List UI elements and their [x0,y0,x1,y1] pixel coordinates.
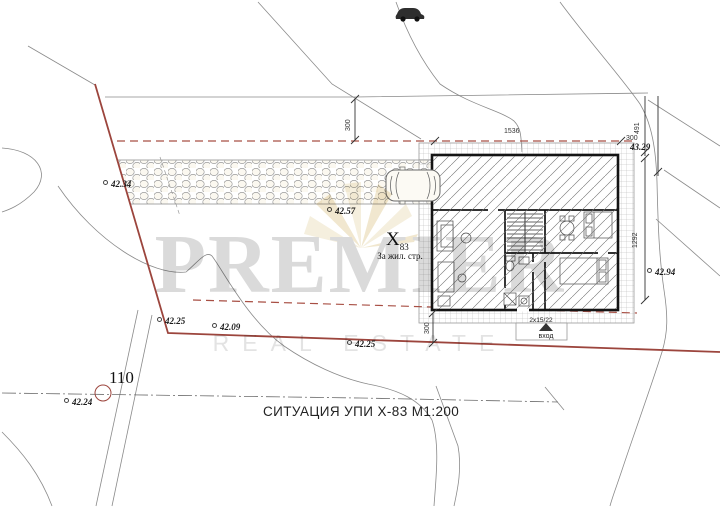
site-plan-canvas: СИТУАЦИЯ УПИ Х-83 М1:200 42.34 42.57 42.… [0,0,720,508]
car-on-driveway [386,167,440,204]
elevation-west-upper: 42.25 [157,316,185,326]
survey-point-label: 110 [109,368,134,388]
building-hatch [433,156,617,309]
entrance-label: вход [531,333,561,340]
elevation-east: 42.94 [647,267,675,277]
dim-northeast-offset: 300 [626,135,638,142]
site-plan-drawing [0,0,720,508]
elevation-northwest: 42.34 [103,179,131,189]
elevation-northeast-corner: 43.29 [630,142,650,152]
dim-north-frontage: 1536 [504,128,520,135]
dim-north-setback: 300 [345,119,352,131]
parcel-number-main: X [386,229,400,250]
car-top-icon [396,8,425,22]
dim-south-setback: 300 [424,322,431,334]
elevation-west-lower: 42.09 [212,322,240,332]
elevation-driveway: 42.57 [327,206,355,216]
elevation-southwest: 42.24 [64,397,92,407]
dim-northeast-side: 491 [634,122,641,134]
entrance-steps-note: 2x15/22 [522,317,560,324]
dim-east-depth: 1292 [632,232,639,248]
parcel-number: X83 [386,229,409,252]
drawing-title: СИТУАЦИЯ УПИ Х-83 М1:200 [263,404,463,419]
elevation-south: 42.25 [347,339,375,349]
building-footprint [432,155,618,310]
parcel-designation: За жил. стр. [368,251,432,261]
